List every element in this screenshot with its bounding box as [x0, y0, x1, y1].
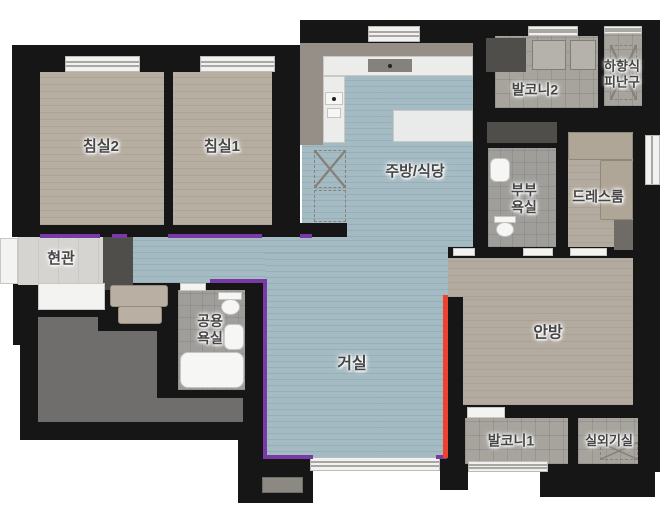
- label-shared-bathroom: 공용 욕실: [197, 313, 223, 347]
- master-washbasin-icon: [490, 158, 510, 182]
- structure-block: [262, 477, 303, 493]
- entrance-side-cabinet: [103, 237, 133, 290]
- accent-purple-1: [40, 234, 100, 238]
- balcony1-door: [467, 407, 505, 418]
- ac-unit-icon-mid: [487, 122, 557, 143]
- floor-corridor: [133, 237, 473, 253]
- oven-icon: [327, 108, 341, 118]
- window-kitchen: [368, 26, 420, 42]
- label-master-bathroom: 부부 욕실: [511, 182, 537, 216]
- window-escape-hatch: [604, 26, 642, 34]
- label-outdoor-unit: 실외기실: [585, 433, 633, 449]
- master-toilet-bowl-icon: [496, 222, 514, 237]
- window-balcony1: [468, 461, 548, 472]
- refrigerator-space-icon: [314, 150, 346, 188]
- label-master-bedroom: 안방: [533, 323, 562, 342]
- accent-purple-5: [210, 279, 267, 283]
- floor-master-hall: [448, 258, 633, 297]
- wall-left: [12, 45, 40, 237]
- wardrobe-dark: [614, 220, 633, 250]
- core-area-1: [38, 317, 98, 422]
- threshold-master-bath: [523, 248, 553, 256]
- accent-purple-7: [263, 455, 313, 459]
- pantry-space-icon: [314, 190, 346, 222]
- label-escape-hatch: 하향식 피난구: [604, 58, 640, 89]
- threshold-shared-bath: [180, 283, 206, 291]
- washer-icon: [532, 40, 566, 70]
- label-balcony2: 발코니2: [512, 82, 558, 99]
- bench-seat-top: [110, 285, 168, 307]
- accent-purple-4: [300, 234, 312, 238]
- label-bedroom1: 침실1: [204, 138, 240, 156]
- toilet-bowl-icon: [221, 299, 240, 315]
- dining-island: [393, 110, 473, 142]
- floor-plan: 침실2 침실1 주방/식당 발코니2 하향식 피난구 부부 욕실 드레스룸 현관…: [0, 0, 671, 512]
- washbasin-icon: [224, 324, 244, 350]
- dryer-icon: [570, 40, 596, 70]
- window-dress-room: [645, 135, 660, 185]
- accent-purple-2: [112, 234, 127, 238]
- window-balcony2: [528, 26, 578, 36]
- wall-bedroom-divider: [164, 72, 173, 232]
- label-living-room: 거실: [337, 354, 366, 373]
- accent-purple-6: [263, 279, 267, 459]
- label-balcony1: 발코니1: [488, 433, 534, 450]
- kitchen-backsplash-left: [300, 43, 323, 145]
- label-entrance: 현관: [47, 250, 75, 268]
- wall-master-left: [448, 297, 463, 412]
- core-area-3: [157, 398, 243, 422]
- bathtub-icon: [180, 352, 244, 388]
- stove-icon: [325, 92, 343, 105]
- core-area-2: [98, 331, 157, 422]
- wall-bottomright: [540, 464, 655, 497]
- threshold-dress-room: [570, 248, 607, 256]
- label-kitchen-dining: 주방/식당: [385, 163, 444, 181]
- ac-unit-icon-top: [486, 38, 526, 72]
- window-bedroom2: [65, 56, 140, 72]
- wardrobe-top: [568, 132, 633, 160]
- threshold-master-hall: [453, 248, 475, 256]
- wall-bedroom1-right: [272, 45, 300, 237]
- label-bedroom2: 침실2: [83, 138, 119, 156]
- accent-red-wall: [443, 295, 448, 458]
- entrance-door: [0, 238, 18, 284]
- accent-purple-3: [168, 234, 262, 238]
- window-living-room: [310, 457, 440, 471]
- label-dress-room: 드레스룸: [572, 189, 624, 206]
- window-bedroom1: [200, 56, 275, 72]
- shoe-closet: [38, 283, 105, 310]
- kitchen-sink-icon: [368, 59, 412, 72]
- floor-master-bedroom: [463, 297, 633, 405]
- bench-seat-bottom: [118, 306, 162, 324]
